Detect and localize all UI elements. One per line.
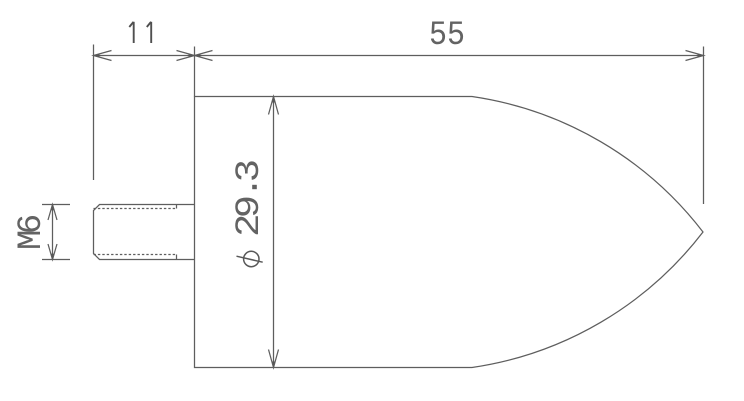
- svg-text:9: 9: [231, 195, 269, 219]
- svg-text:3: 3: [231, 159, 269, 183]
- svg-text:55: 55: [429, 17, 465, 55]
- svg-text:6: 6: [13, 214, 51, 234]
